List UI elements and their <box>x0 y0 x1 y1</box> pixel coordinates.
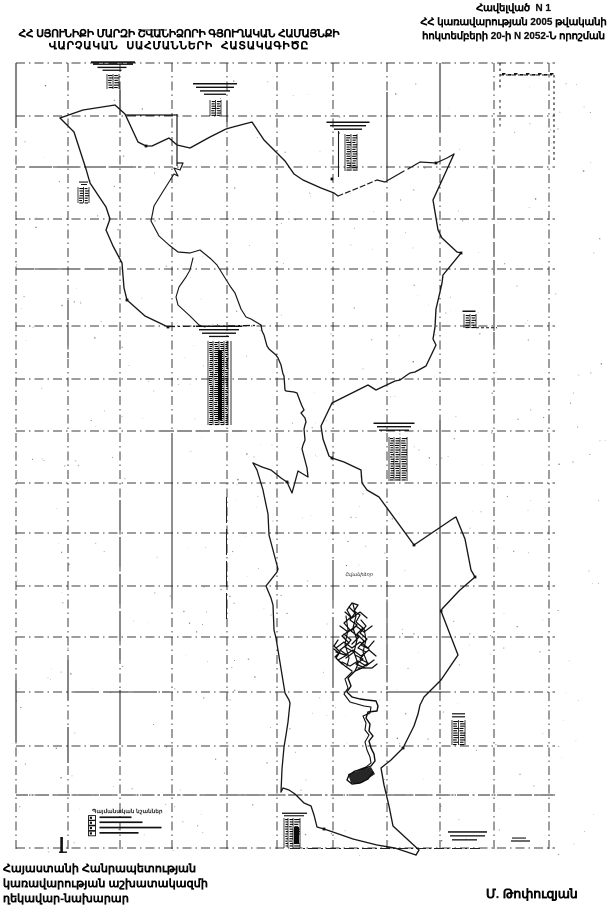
svg-text:Պայմանական նշաններ: Պայմանական նշաններ <box>92 809 163 815</box>
svg-text:Շվանիձոր: Շվանիձոր <box>345 572 373 578</box>
